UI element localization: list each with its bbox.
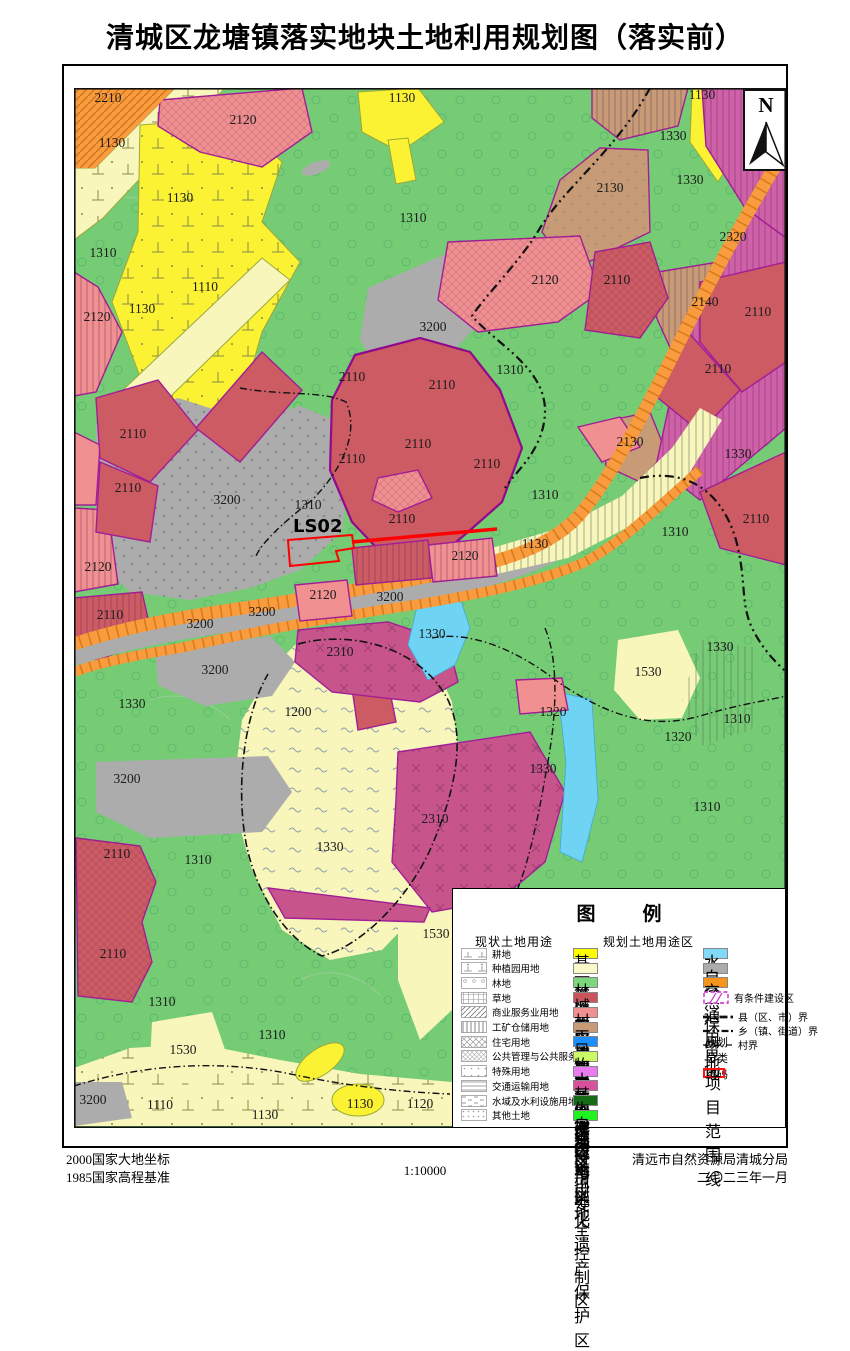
legend-swatch-color: 其他建设用地: [573, 1080, 598, 1091]
land-code-label: 1530: [635, 664, 662, 679]
legend-swatch-color: 林业用地区: [573, 977, 598, 988]
legend-swatch-pattern: [461, 977, 487, 989]
land-code-label: 2110: [339, 451, 366, 466]
land-code-label: 2310: [327, 644, 354, 659]
legend-item: 有条件建设区: [703, 991, 794, 1004]
legend-swatch-color: 交通用地: [703, 977, 728, 988]
land-code-label: 2110: [115, 480, 142, 495]
land-code-label: 3200: [187, 616, 214, 631]
legend-item: 林地: [461, 976, 511, 989]
legend-swatch-color: 生态环境安全控制区: [573, 1095, 598, 1106]
legend-swatch-project: 项目范围线: [703, 1068, 725, 1078]
land-code-label: 1320: [540, 704, 567, 719]
footer-scale: 1:10000: [355, 1162, 495, 1180]
north-arrow: N: [744, 90, 786, 170]
footer-datum: 2000国家大地坐标 1985国家高程基准: [66, 1151, 170, 1187]
legend-swatch-conditional: [703, 991, 729, 1004]
land-code-label: 3200: [420, 319, 447, 334]
page: { "page": { "title": "清城区龙塘镇落实地块土地利用规划图（…: [0, 0, 850, 1202]
land-code-label: 1310: [400, 210, 427, 225]
legend-item: 牧业用地区: [573, 1050, 603, 1063]
legend-swatch-color: 工矿用地区: [573, 1022, 598, 1033]
legend-swatch-color: 一般农地区: [573, 963, 598, 974]
legend-item-label: 乡（镇、街道）界: [738, 1023, 818, 1038]
legend-item-label: 县（区、市）界: [738, 1009, 808, 1024]
legend-item: 自然与文化遗产保护区: [573, 1109, 603, 1122]
legend-item: 水域及水利设施用地: [461, 1094, 578, 1107]
legend-item-label: 商业服务业用地: [492, 1005, 559, 1019]
land-code-label: 1310: [259, 1027, 286, 1042]
land-code-label: 1330: [725, 446, 752, 461]
legend-item: 林业用地区: [573, 976, 603, 989]
land-code-label: 1530: [170, 1042, 197, 1057]
legend-item: 工矿用地区: [573, 1021, 603, 1034]
legend-item: 其他建设用地: [573, 1079, 603, 1092]
land-code-label: 2120: [310, 587, 337, 602]
legend-item: 交通运输用地: [461, 1079, 549, 1092]
land-code-label: 2110: [389, 511, 416, 526]
land-code-label: 1310: [497, 362, 524, 377]
land-code-label: 1110: [192, 279, 218, 294]
land-code-label: 1330: [317, 839, 344, 854]
land-code-label: 1200: [285, 704, 312, 719]
legend-swatch-line: [703, 1013, 733, 1021]
legend-item: 商业服务业用地: [461, 1006, 559, 1019]
legend-item: 村镇建设用地区: [573, 1006, 603, 1019]
legend-swatch-color: 村镇建设用地区: [573, 1007, 598, 1018]
legend-item-label: 其他土地: [492, 1108, 530, 1122]
land-code-label: 1330: [677, 172, 704, 187]
legend-item: 耕地: [461, 947, 511, 960]
land-code-label: 2120: [452, 548, 479, 563]
land-code-label: 1130: [167, 190, 194, 205]
land-code-label: 2110: [705, 361, 732, 376]
footer-height-datum: 1985国家高程基准: [66, 1169, 170, 1187]
legend-item-label: 水域及水利设施用地: [492, 1094, 578, 1108]
land-code-label: 3200: [377, 589, 404, 604]
land-code-label: 2110: [339, 369, 366, 384]
legend-swatch-pattern: [461, 992, 487, 1004]
land-code-label: 3200: [249, 604, 276, 619]
land-code-label: 2310: [422, 811, 449, 826]
legend-swatch-pattern: [461, 1050, 487, 1062]
legend-title: 图 例: [453, 899, 785, 926]
land-code-label: 2110: [429, 377, 456, 392]
legend-swatch-color: 水域: [703, 948, 728, 959]
land-code-label: 3200: [214, 492, 241, 507]
legend-item: 水工建筑用地: [573, 1065, 603, 1078]
land-code-label: 2120: [85, 559, 112, 574]
footer-coordinate-system: 2000国家大地坐标: [66, 1151, 170, 1169]
legend-swatch-pattern: [461, 1095, 487, 1107]
land-code-label: 2110: [745, 304, 772, 319]
legend-item: 种植园用地: [461, 962, 540, 975]
legend-item: 自然保留地: [703, 962, 733, 975]
legend-item: 项目范围线: [703, 1066, 730, 1079]
land-code-label: 1330: [530, 761, 557, 776]
land-code-label: 1330: [419, 626, 446, 641]
land-code-label: 2110: [100, 946, 127, 961]
land-code-label: 1310: [694, 799, 721, 814]
land-code-label: 2130: [617, 434, 644, 449]
region-3200: [96, 756, 292, 838]
legend-item-label: 住宅用地: [492, 1035, 530, 1049]
land-code-label: 2110: [604, 272, 631, 287]
legend-swatch-pattern: [461, 1080, 487, 1092]
land-code-label: 1310: [532, 487, 559, 502]
land-code-label: 1130: [689, 88, 716, 102]
land-code-label: 2110: [120, 426, 147, 441]
legend-swatch-color: 风景旅游用地区: [573, 1036, 598, 1047]
land-code-label: 1310: [185, 852, 212, 867]
legend-item: 县（区、市）界: [703, 1010, 808, 1023]
page-title: 清城区龙塘镇落实地块土地利用规划图（落实前）: [0, 16, 850, 56]
legend-box: 图 例 现状土地用途 规划土地用途区 耕地种植园用地林地草地商业服务业用地工矿仓…: [452, 888, 786, 1128]
legend-item: 生态环境安全控制区: [573, 1094, 603, 1107]
legend-item-label: 草地: [492, 991, 511, 1005]
legend-item: 基本农田保护区: [573, 947, 603, 960]
land-code-label: 1330: [707, 639, 734, 654]
legend-swatch-color: 牧业用地区: [573, 1051, 598, 1062]
land-code-label: 1310: [149, 994, 176, 1009]
land-code-label: 2130: [597, 180, 624, 195]
legend-item: 风景旅游用地区: [573, 1035, 603, 1048]
legend-swatch-pattern: [461, 1036, 487, 1048]
legend-item-label: 村界: [738, 1037, 758, 1052]
legend-item-label: 有条件建设区: [734, 990, 794, 1005]
land-code-label: 1130: [99, 135, 126, 150]
land-code-label: 2120: [532, 272, 559, 287]
legend-swatch-pattern: [461, 1109, 487, 1121]
legend-item: 特殊用地: [461, 1065, 530, 1078]
land-code-label: 1130: [347, 1096, 374, 1111]
legend-swatch-color: 城镇建设用地区: [573, 992, 598, 1003]
north-label: N: [758, 93, 773, 117]
legend-item-label: 林地: [492, 976, 511, 990]
legend-swatch-pattern: [461, 1021, 487, 1033]
legend-swatch-color: 自然保留地: [703, 963, 728, 974]
legend-item-label: 特殊用地: [492, 1064, 530, 1078]
project-code-label: LS02: [293, 516, 342, 537]
land-code-label: 1110: [147, 1097, 173, 1112]
land-code-label: 2120: [84, 309, 111, 324]
land-code-label: 1330: [660, 128, 687, 143]
legend-item: 交通用地: [703, 976, 733, 989]
legend-swatch-color: 基本农田保护区: [573, 948, 598, 959]
land-code-label: 2320: [720, 229, 747, 244]
land-code-label: 2110: [743, 511, 770, 526]
legend-item-label: 耕地: [492, 947, 511, 961]
legend-item: 规划分类编码: [703, 1051, 736, 1064]
legend-swatch-color: 水工建筑用地: [573, 1066, 598, 1077]
land-code-label: 1310: [90, 245, 117, 260]
legend-item-label: 种植园用地: [492, 961, 540, 975]
land-code-label: 3200: [80, 1092, 107, 1107]
land-code-label: 2210: [95, 90, 122, 105]
land-code-label: 1120: [407, 1096, 434, 1111]
legend-item: 其他土地: [461, 1109, 530, 1122]
land-code-label: 1130: [522, 536, 549, 551]
land-code-label: 1130: [129, 301, 156, 316]
legend-item: 一般农地区: [573, 962, 603, 975]
legend-swatch-pattern: [461, 948, 487, 960]
land-code-label: 1310: [662, 524, 689, 539]
land-code-label: 2110: [104, 846, 131, 861]
legend-item-label: 工矿仓储用地: [492, 1020, 549, 1034]
legend-item: 工矿仓储用地: [461, 1021, 549, 1034]
land-code-label: 1310: [295, 497, 322, 512]
land-code-label: 2110: [97, 607, 124, 622]
legend-item-label: 交通运输用地: [492, 1079, 549, 1093]
legend-item: 城镇建设用地区: [573, 991, 603, 1004]
land-code-label: 3200: [114, 771, 141, 786]
land-code-label: 2120: [230, 112, 257, 127]
legend-item: 草地: [461, 991, 511, 1004]
land-code-label: 2140: [692, 294, 719, 309]
legend-swatch-pattern: [461, 1065, 487, 1077]
land-code-label: 1330: [119, 696, 146, 711]
legend-item: 水域: [703, 947, 733, 960]
legend-header-planned: 规划土地用途区: [603, 933, 694, 950]
legend-swatch-color: 自然与文化遗产保护区: [573, 1110, 598, 1121]
land-code-label: 3200: [202, 662, 229, 677]
land-code-label: 1530: [423, 926, 450, 941]
land-code-label: 1320: [665, 729, 692, 744]
legend-swatch-pattern: [461, 1006, 487, 1018]
region-2110-road-pattern: [352, 540, 432, 585]
land-code-label: 2110: [474, 456, 501, 471]
land-code-label: 1130: [252, 1107, 279, 1122]
land-code-label: 2110: [405, 436, 432, 451]
region-2120: [74, 432, 100, 505]
land-code-label: 1310: [724, 711, 751, 726]
legend-item: 住宅用地: [461, 1035, 530, 1048]
legend-swatch-pattern: [461, 962, 487, 974]
land-code-label: 1130: [389, 90, 416, 105]
